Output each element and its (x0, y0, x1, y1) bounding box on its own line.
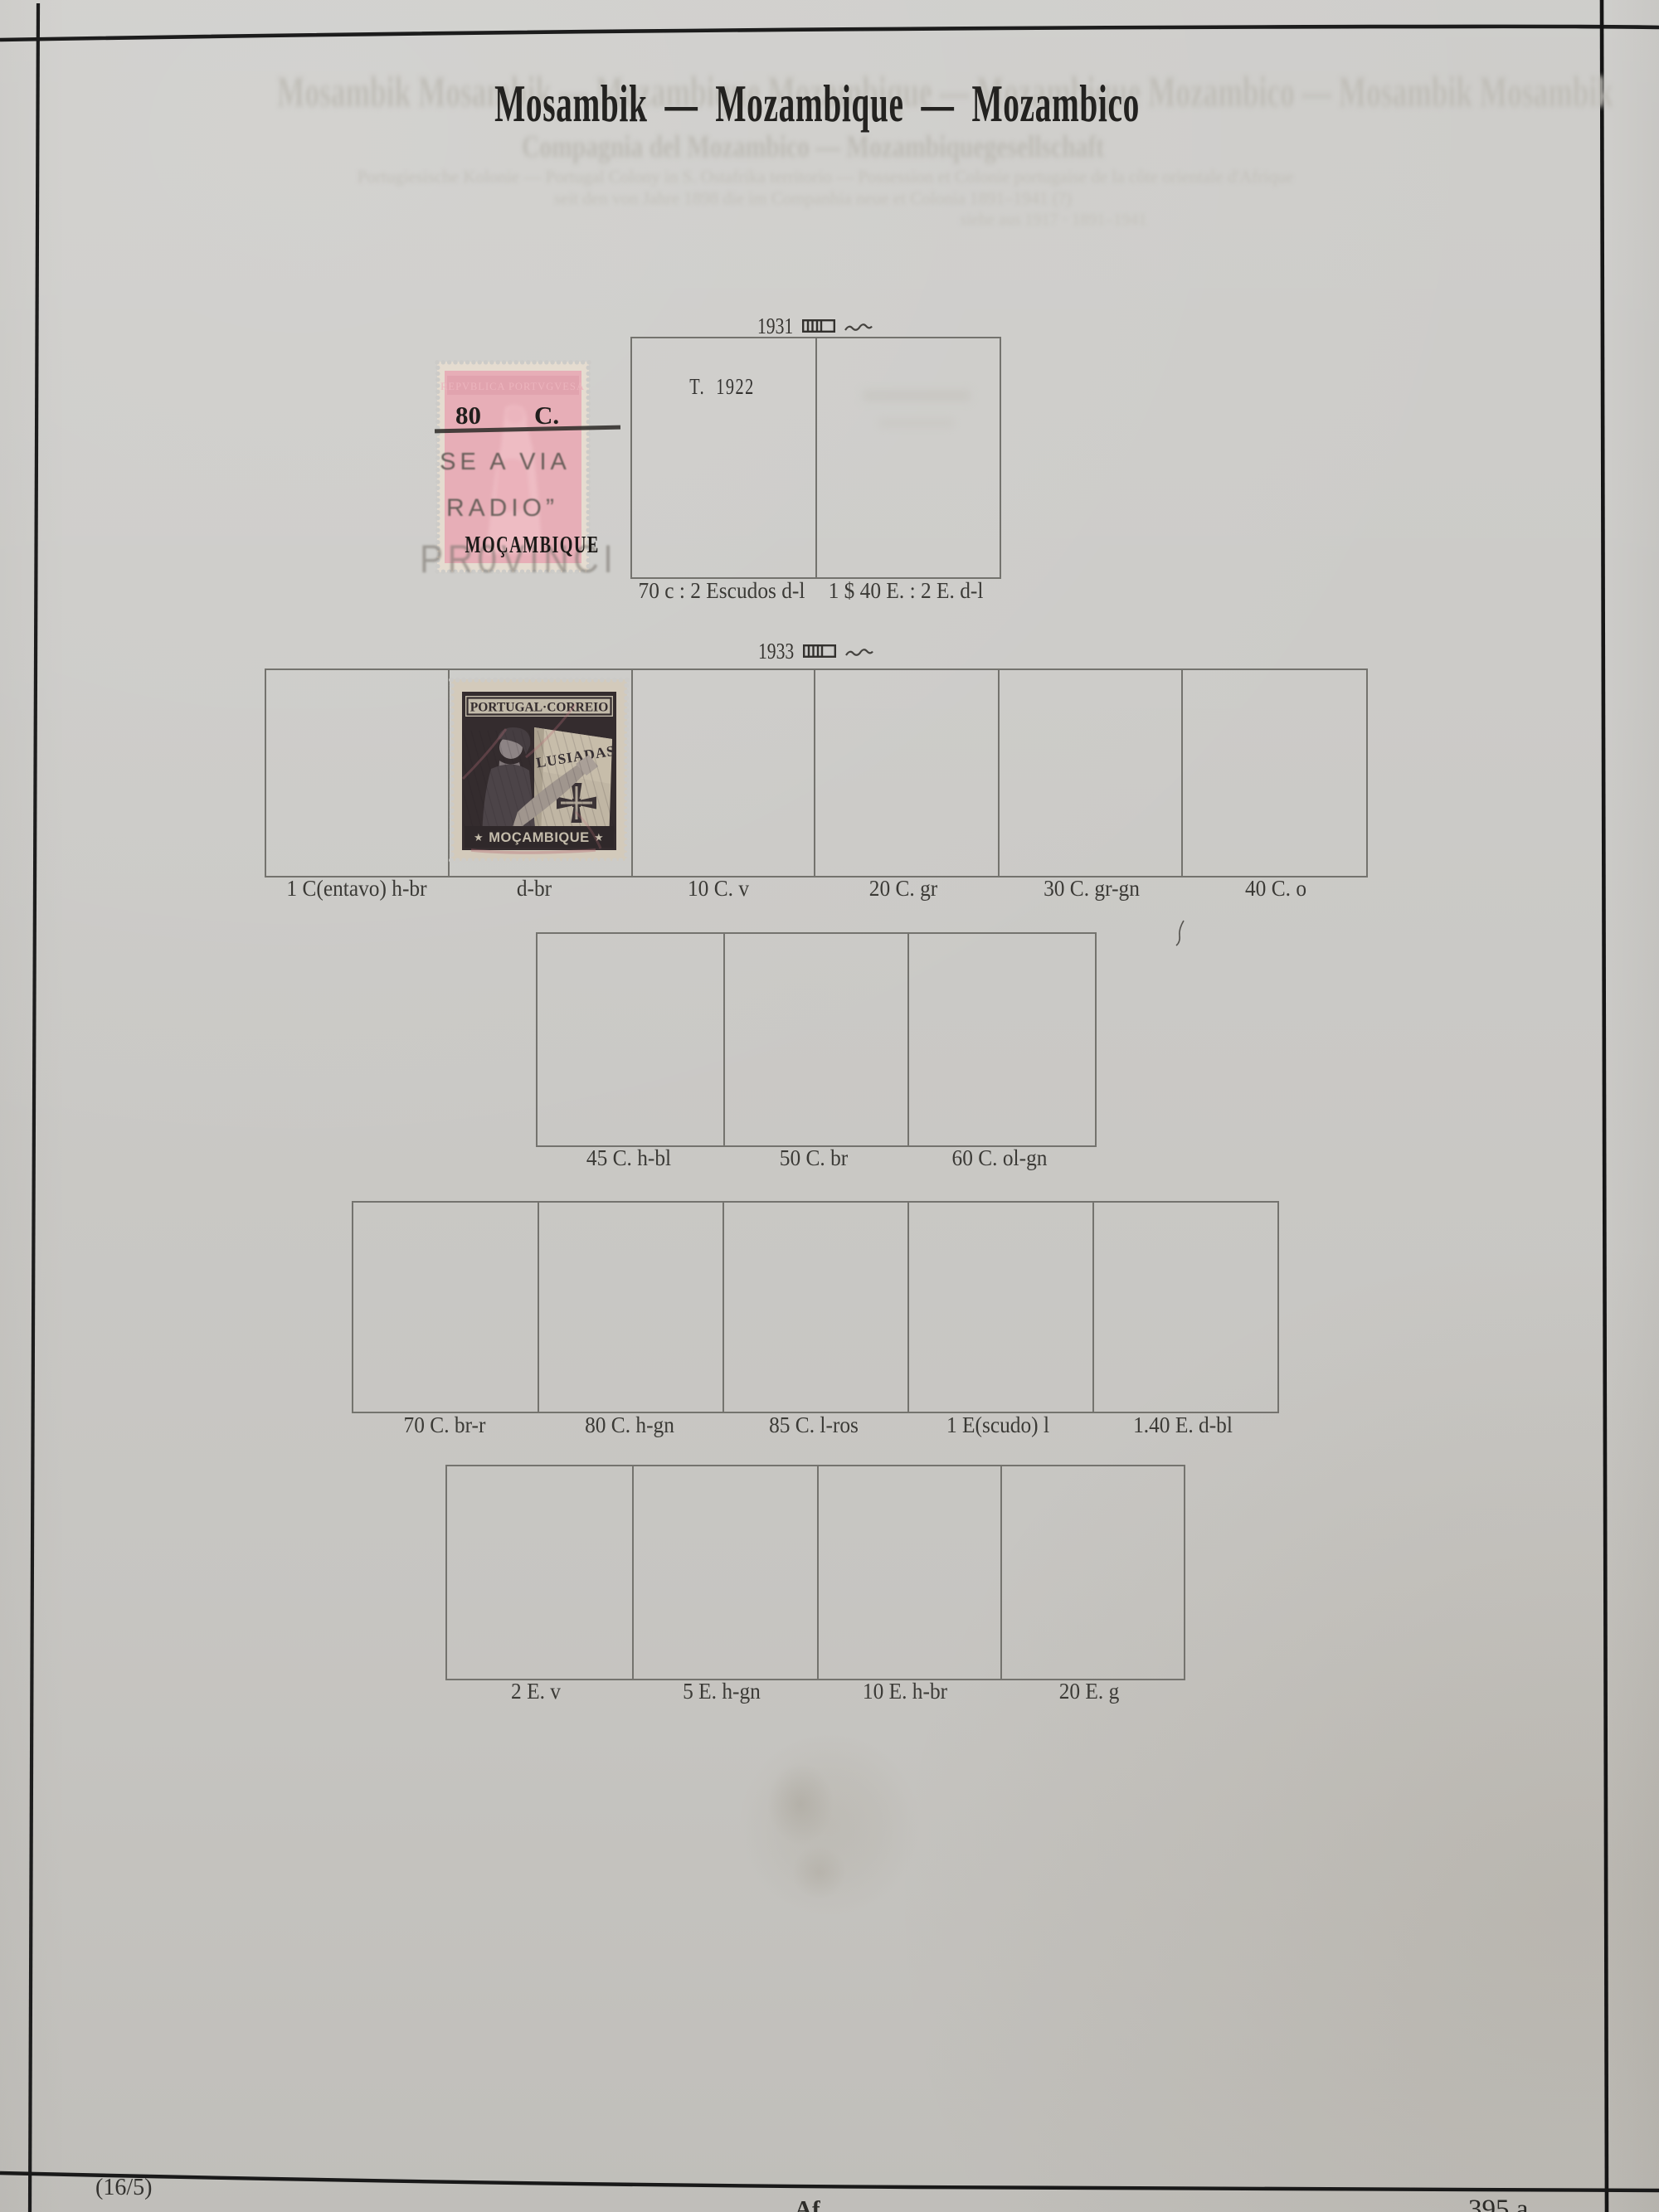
svg-text:REPVBLICA PORTVGVESA: REPVBLICA PORTVGVESA (440, 381, 585, 392)
svg-text:PORTUGAL·CORREIO: PORTUGAL·CORREIO (470, 701, 609, 715)
svg-text:★: ★ (474, 831, 484, 843)
svg-text:C.: C. (534, 401, 559, 430)
svg-text:80: 80 (455, 401, 481, 430)
svg-text:MOÇAMBIQUE: MOÇAMBIQUE (489, 830, 589, 845)
